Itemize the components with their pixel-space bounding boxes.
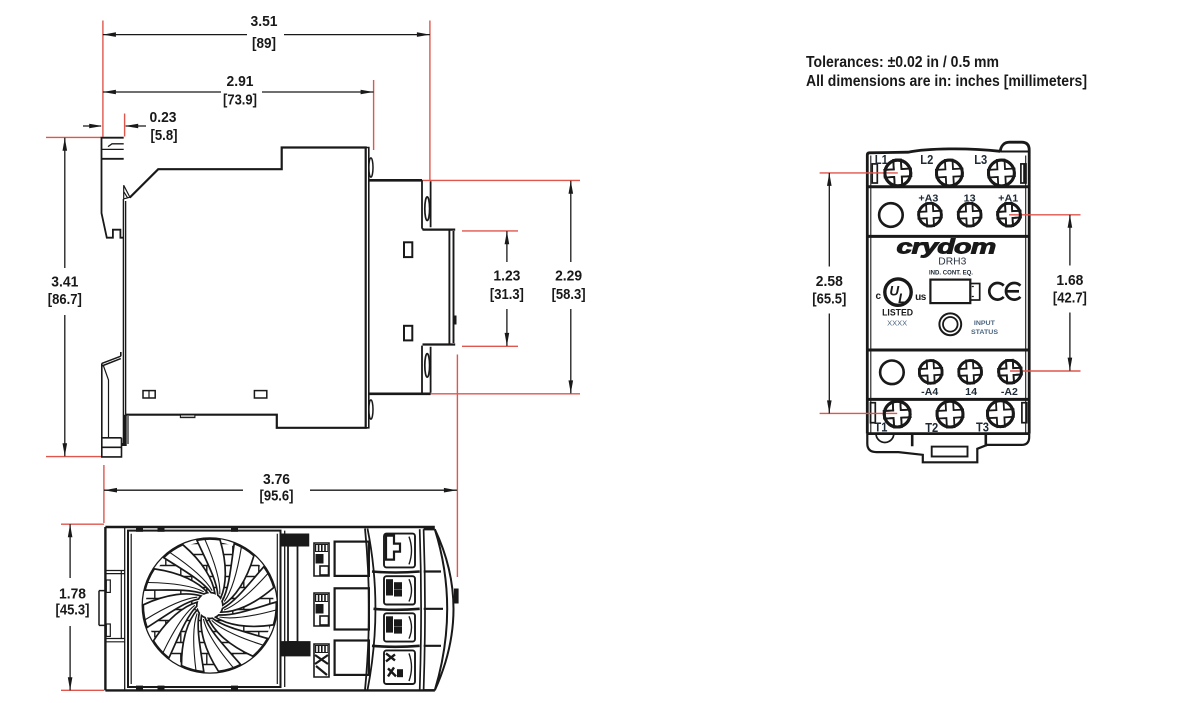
svg-text:[58.3]: [58.3] [552, 286, 586, 303]
svg-text:13: 13 [964, 192, 976, 204]
svg-text:All dimensions are in: inches: All dimensions are in: inches [millimete… [806, 73, 1087, 90]
svg-text:2.58: 2.58 [816, 273, 843, 290]
svg-text:L2: L2 [920, 153, 933, 167]
svg-text:L: L [898, 291, 906, 306]
svg-text:1.68: 1.68 [1056, 272, 1083, 289]
svg-text:INPUT: INPUT [974, 320, 996, 327]
svg-text:XXXX: XXXX [887, 321, 907, 328]
svg-text:[45.3]: [45.3] [56, 602, 90, 619]
svg-text:[89]: [89] [252, 35, 276, 52]
svg-text:-A2: -A2 [1001, 386, 1018, 398]
svg-text:LISTED: LISTED [882, 308, 913, 319]
svg-text:1.23: 1.23 [493, 268, 520, 285]
svg-text:T1: T1 [874, 421, 887, 435]
svg-text:[65.5]: [65.5] [812, 290, 846, 307]
svg-text:3.41: 3.41 [51, 273, 78, 290]
svg-text:+A3: +A3 [918, 192, 938, 204]
svg-text:[42.7]: [42.7] [1053, 289, 1087, 306]
svg-text:[95.6]: [95.6] [260, 488, 294, 505]
svg-text:-A4: -A4 [921, 386, 938, 398]
svg-text:2.29: 2.29 [555, 268, 582, 285]
svg-text:IND. CONT. EQ.: IND. CONT. EQ. [929, 269, 973, 276]
svg-text:2.91: 2.91 [227, 73, 254, 90]
svg-text:L3: L3 [974, 153, 987, 167]
svg-text:c: c [876, 291, 882, 302]
svg-text:STATUS: STATUS [971, 329, 998, 336]
svg-text:us: us [915, 292, 927, 303]
svg-text:L1: L1 [875, 153, 888, 167]
svg-text:14: 14 [965, 386, 977, 398]
svg-text:3.76: 3.76 [263, 471, 290, 488]
svg-text:DRH3: DRH3 [938, 255, 966, 267]
svg-text:[31.3]: [31.3] [490, 286, 524, 303]
svg-text:[86.7]: [86.7] [48, 291, 82, 308]
svg-text:3.51: 3.51 [251, 13, 278, 30]
svg-text:T2: T2 [925, 421, 938, 435]
svg-text:1.78: 1.78 [59, 586, 86, 603]
svg-text:[5.8]: [5.8] [151, 127, 178, 144]
svg-text:[73.9]: [73.9] [223, 92, 257, 109]
svg-text:T3: T3 [976, 421, 989, 435]
svg-text:0.23: 0.23 [150, 109, 177, 126]
svg-text:Tolerances: ±0.02 in / 0.5 mm: Tolerances: ±0.02 in / 0.5 mm [806, 54, 999, 71]
